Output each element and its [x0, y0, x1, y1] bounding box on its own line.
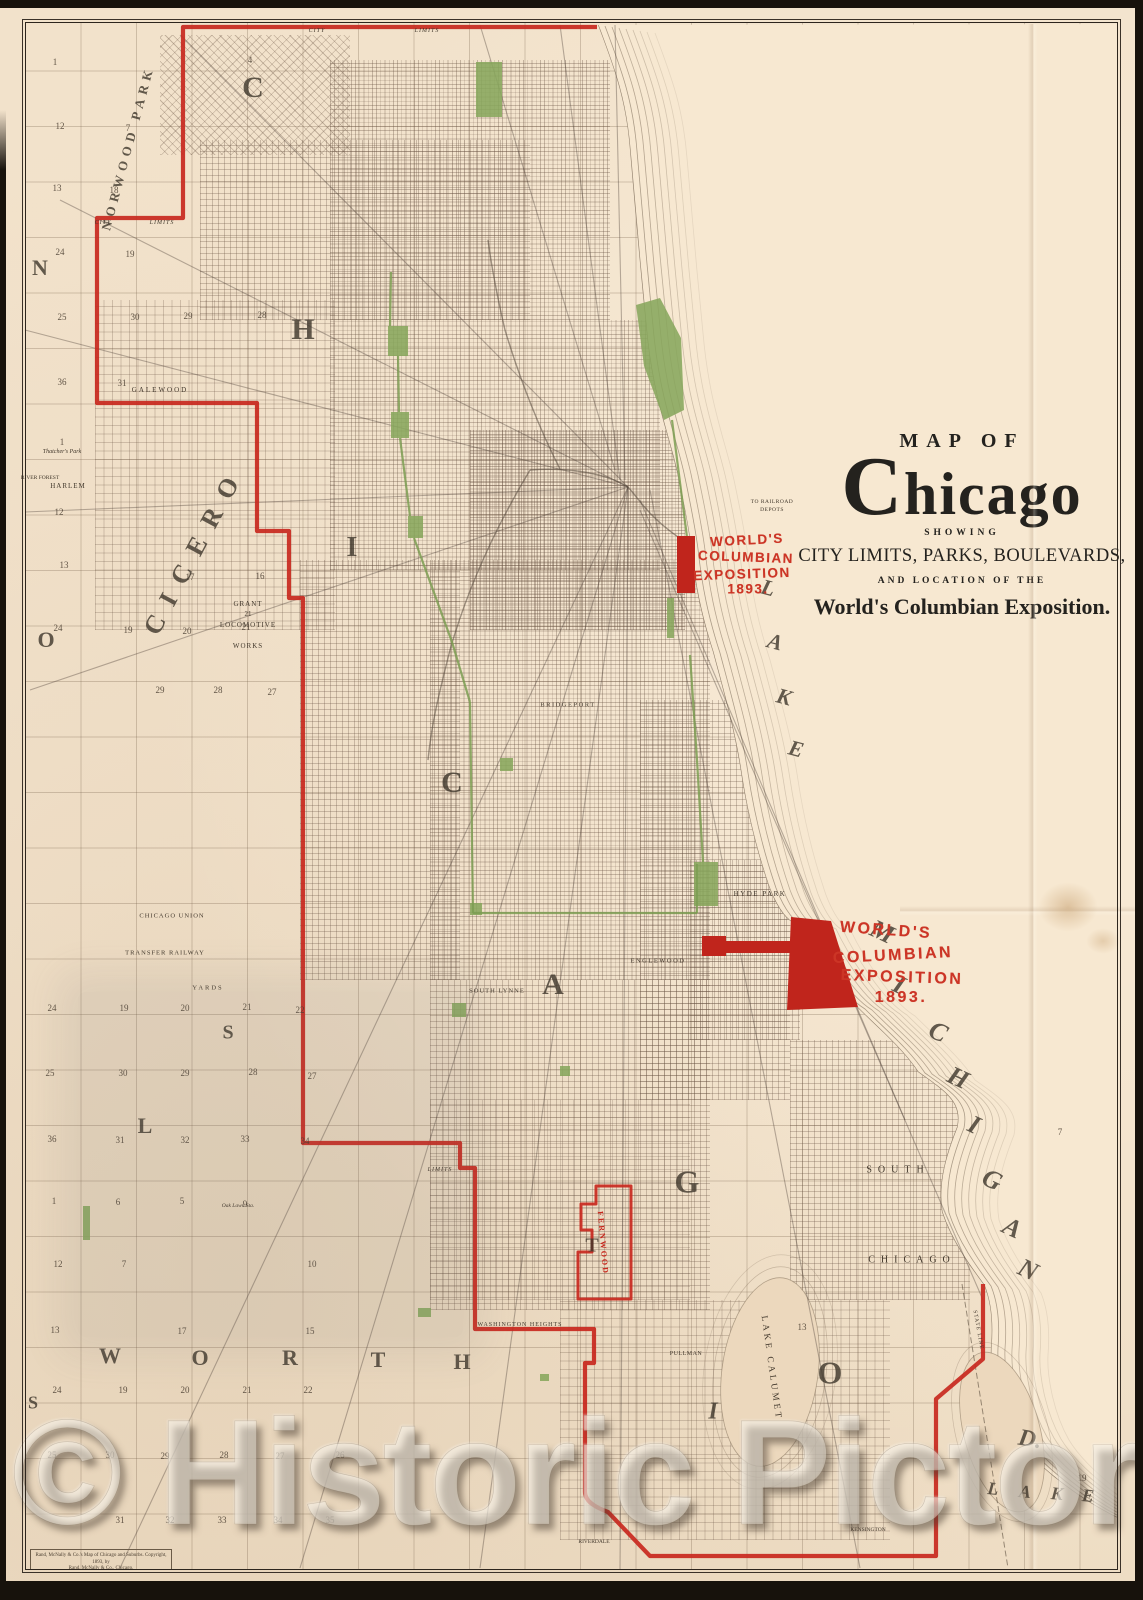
place-label: SOUTH LYNNE — [469, 988, 525, 995]
place-label: LIMITS — [428, 1167, 453, 1173]
place-label: HARLEM — [50, 482, 86, 490]
imprint-line2: Rand, McNally & Co., Chicago. — [31, 1566, 171, 1573]
place-label: CITY — [309, 28, 326, 34]
place-label: ENGLEWOOD — [630, 958, 685, 965]
place-label: CHICAGO UNION — [139, 913, 204, 920]
place-label: STATE LINE — [972, 1310, 985, 1350]
map-photo: 1412713182419253029283631112131716241920… — [0, 0, 1143, 1600]
title-chicago: Chicago — [792, 455, 1132, 526]
place-label: CHICAGO — [868, 1255, 956, 1266]
place-label: CITY — [95, 220, 112, 226]
photo-edge-left — [0, 110, 6, 1600]
place-label: LIMITS — [415, 28, 440, 34]
place-label: TRANSFER RAILWAY — [125, 950, 205, 957]
photo-edge-bottom — [0, 1581, 1143, 1600]
place-label: HYDE PARK — [734, 890, 787, 898]
watermark-text: © Historic Pictoric — [12, 1386, 1143, 1559]
place-labels-layer: GALEWOODHARLEMRIVER FORESTThatcher's Par… — [0, 0, 1143, 1600]
place-label: GALEWOOD — [132, 386, 188, 394]
place-label: Thatcher's Park — [43, 449, 81, 455]
place-label: FERNWOOD — [596, 1211, 611, 1276]
title-location-of: AND LOCATION OF THE — [792, 576, 1132, 586]
place-label: WASHINGTON HEIGHTS — [477, 1322, 562, 1328]
place-label: WORKS — [233, 642, 263, 650]
place-label: LIMITS — [150, 220, 175, 226]
place-label: DEPOTS — [760, 507, 784, 513]
title-exposition: World's Columbian Exposition. — [792, 594, 1132, 620]
place-label: TO RAILROAD — [751, 499, 794, 505]
expo2-line4: 1893. — [875, 989, 928, 1007]
place-label: SOUTH — [866, 1165, 929, 1176]
place-label: YARDS — [192, 985, 223, 992]
photo-edge-top — [0, 0, 1143, 8]
title-block: MAP OF Chicago SHOWING CITY LIMITS, PARK… — [792, 430, 1132, 620]
photo-edge-right — [1135, 0, 1143, 1600]
title-subjects: CITY LIMITS, PARKS, BOULEVARDS, — [792, 546, 1132, 567]
place-label: PULLMAN — [670, 1351, 703, 1357]
place-label: Oak Lawn Sta. — [222, 1203, 255, 1209]
place-label: 21 — [245, 610, 252, 618]
place-label: GRANT — [233, 600, 262, 608]
place-label: LOCOMOTIVE — [220, 621, 276, 629]
place-label: BRIDGEPORT — [540, 702, 595, 709]
expo1-line4: 1893. — [727, 582, 768, 597]
place-label: RIVER FOREST — [21, 475, 59, 481]
